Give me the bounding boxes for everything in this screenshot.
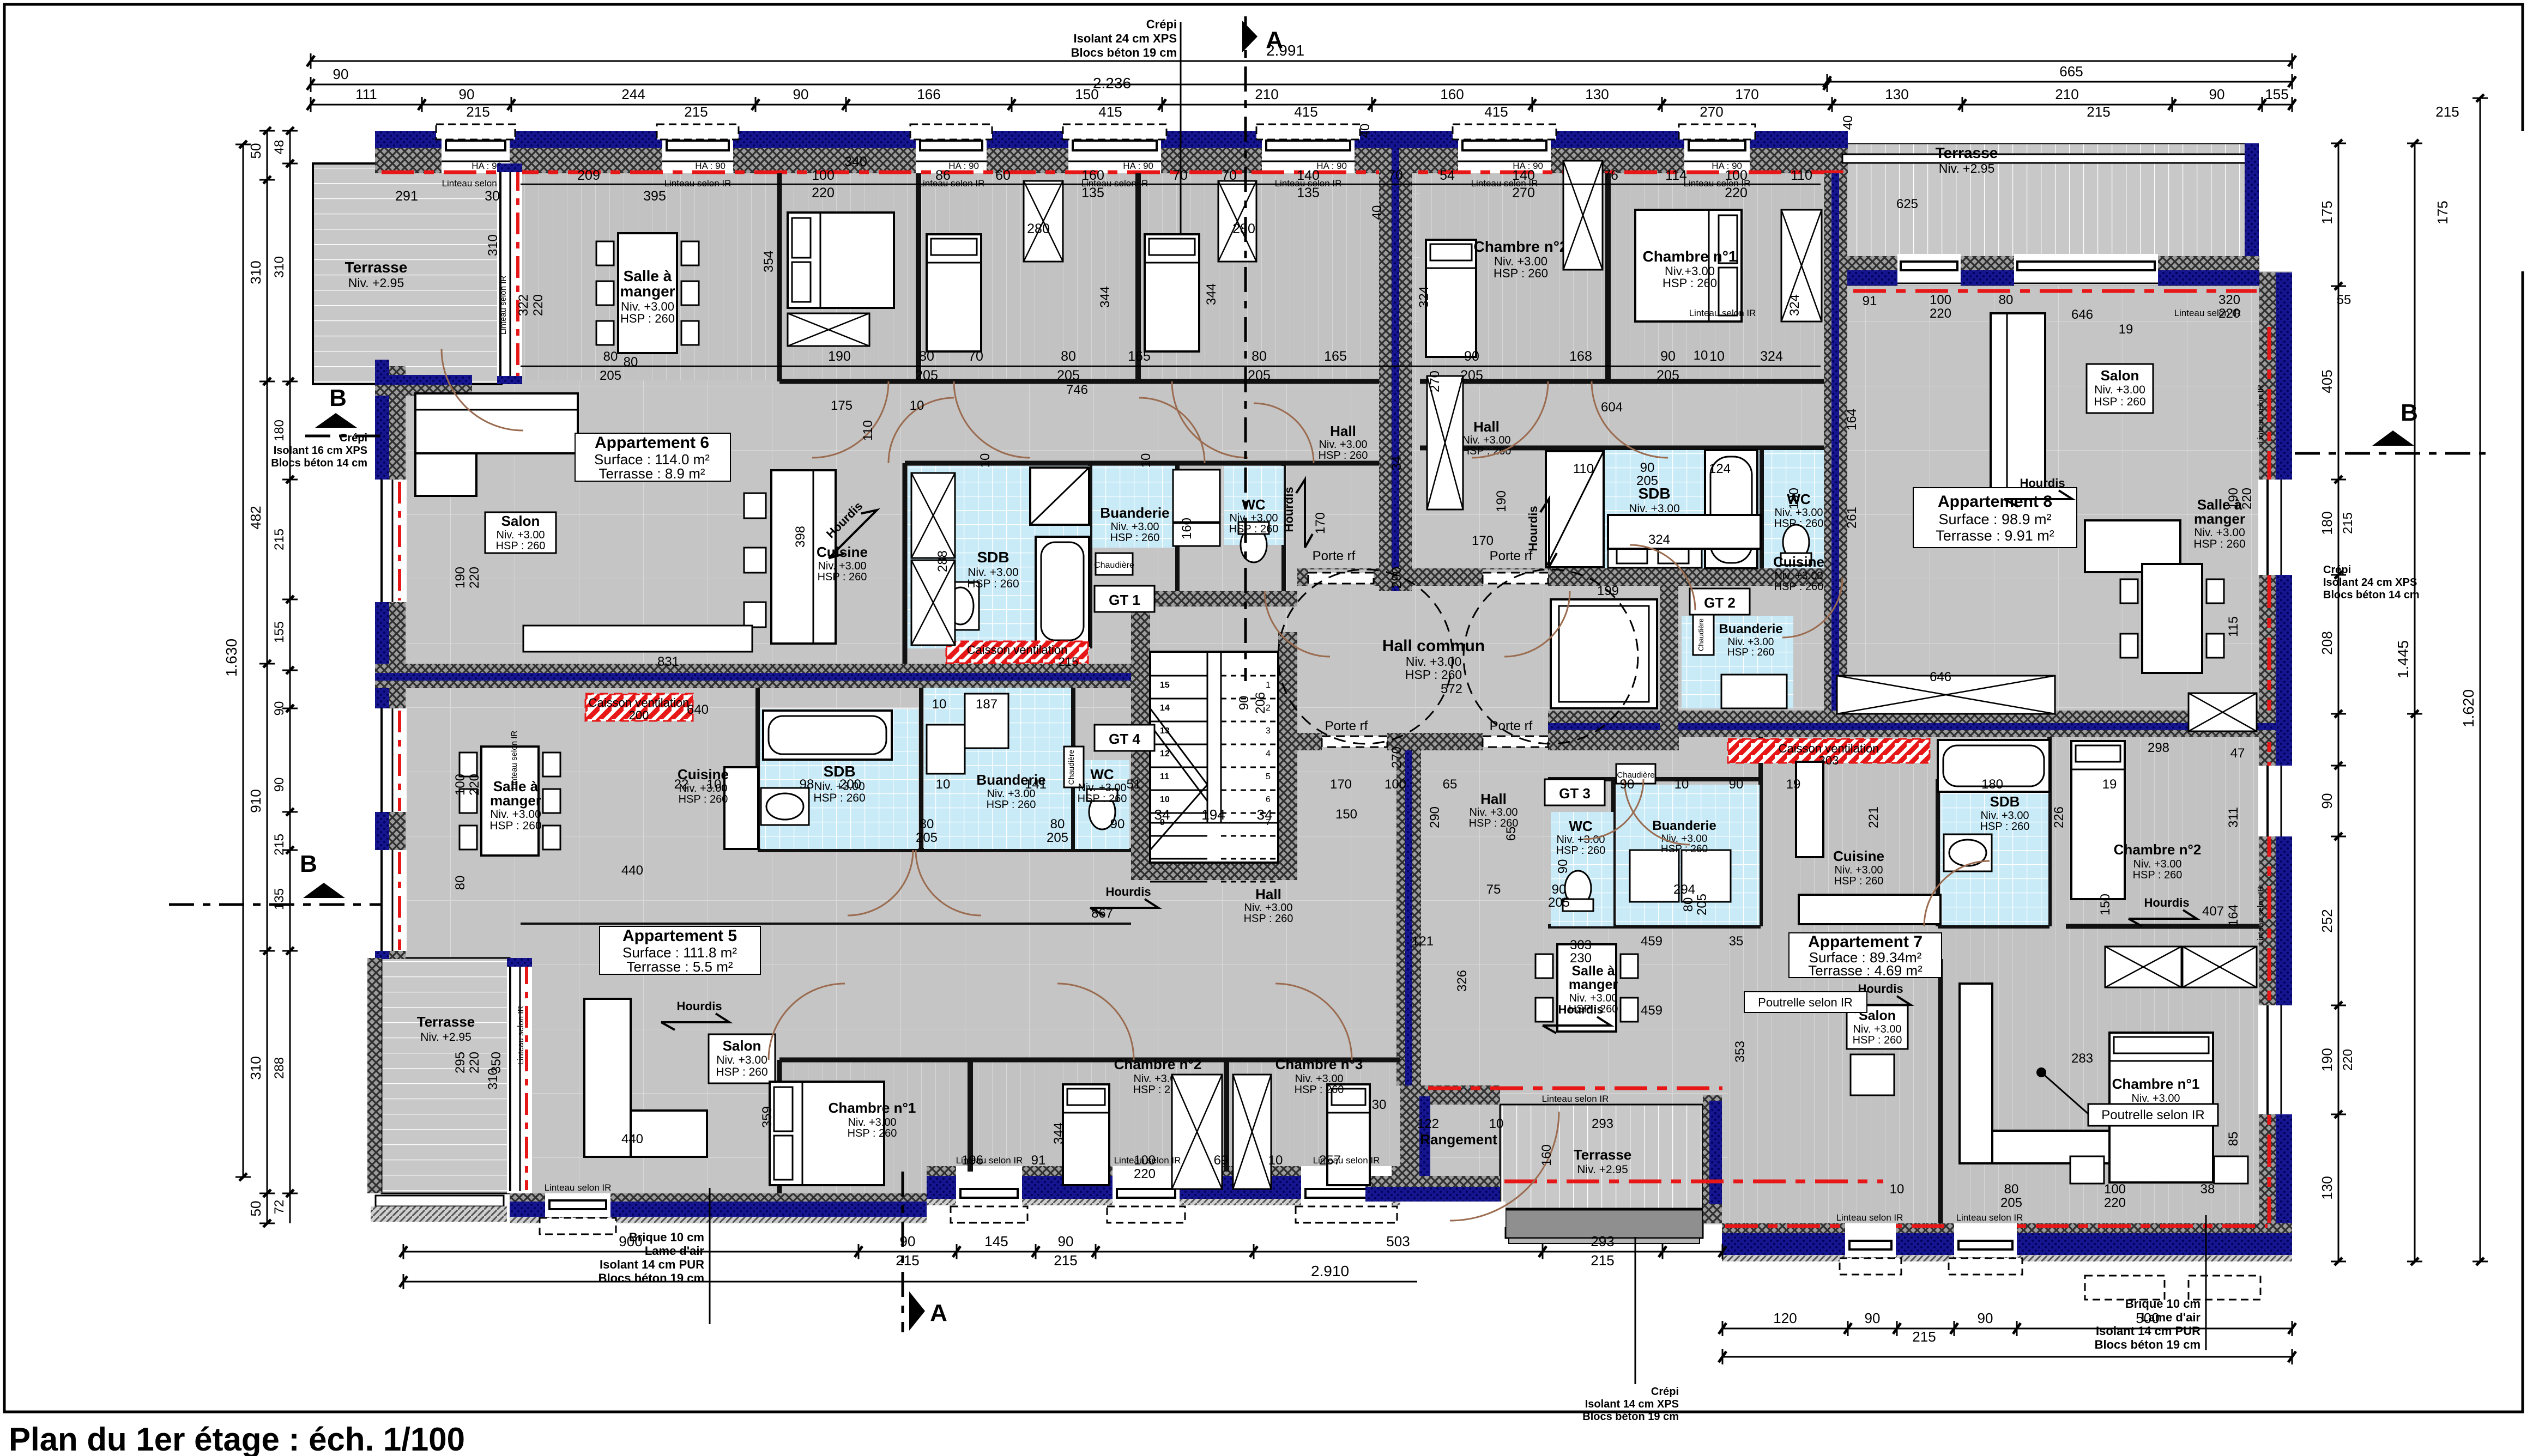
- svg-text:100: 100: [812, 168, 835, 183]
- svg-text:Linteau selon IR: Linteau selon IR: [1689, 308, 1756, 318]
- svg-text:HSP : 260: HSP : 260: [1244, 913, 1293, 925]
- svg-text:Niv. +3.00: Niv. +3.00: [2133, 858, 2181, 870]
- svg-text:86: 86: [935, 168, 951, 183]
- svg-text:226: 226: [2052, 806, 2066, 828]
- svg-text:Terrasse: Terrasse: [345, 259, 408, 276]
- svg-text:110: 110: [1791, 168, 1812, 183]
- svg-text:Chambre n°1: Chambre n°1: [1642, 248, 1737, 265]
- svg-text:HSP : 260: HSP : 260: [1110, 532, 1160, 544]
- svg-text:HSP : 260: HSP : 260: [1980, 821, 2030, 833]
- svg-text:194: 194: [1201, 806, 1225, 823]
- svg-text:Terrasse : 5.5 m²: Terrasse : 5.5 m²: [626, 958, 733, 975]
- svg-text:160: 160: [1081, 168, 1104, 183]
- svg-text:322: 322: [516, 294, 531, 316]
- svg-text:Blocs béton 19 cm: Blocs béton 19 cm: [598, 1271, 704, 1285]
- svg-text:215: 215: [2435, 104, 2459, 120]
- svg-text:220: 220: [812, 185, 835, 201]
- svg-text:310: 310: [247, 1056, 264, 1079]
- svg-text:Caisson ventilation: Caisson ventilation: [967, 643, 1068, 657]
- svg-text:Linteau selon IR: Linteau selon IR: [1956, 1212, 2023, 1223]
- svg-text:Salle à: Salle à: [1571, 963, 1615, 979]
- svg-text:168: 168: [1569, 349, 1592, 364]
- svg-text:120: 120: [1773, 1310, 1797, 1326]
- svg-text:210: 210: [1255, 86, 1278, 102]
- svg-text:270: 270: [1428, 371, 1442, 392]
- svg-text:205: 205: [600, 368, 621, 383]
- svg-text:WC: WC: [1090, 766, 1114, 782]
- svg-text:415: 415: [1294, 104, 1317, 120]
- svg-text:205: 205: [1548, 895, 1570, 910]
- svg-text:manger: manger: [620, 283, 675, 300]
- svg-text:244: 244: [621, 86, 645, 102]
- svg-text:90: 90: [1110, 817, 1125, 832]
- svg-text:205: 205: [1460, 368, 1483, 383]
- svg-text:164: 164: [2226, 905, 2241, 926]
- svg-text:230: 230: [1570, 951, 1592, 966]
- svg-text:85: 85: [2226, 1132, 2241, 1146]
- svg-text:Crépi: Crépi: [1651, 1386, 1679, 1398]
- svg-text:5: 5: [1266, 772, 1271, 781]
- svg-text:215: 215: [1059, 655, 1079, 669]
- svg-text:221: 221: [1866, 806, 1881, 828]
- svg-text:90: 90: [2209, 86, 2225, 102]
- svg-text:Linteau selon IR: Linteau selon IR: [499, 276, 508, 335]
- svg-text:6: 6: [1266, 795, 1271, 804]
- svg-text:205: 205: [1695, 894, 1709, 915]
- svg-text:manger: manger: [490, 792, 541, 809]
- svg-text:Niv. +3.00: Niv. +3.00: [1462, 434, 1510, 446]
- svg-text:10: 10: [910, 398, 924, 413]
- svg-text:900: 900: [619, 1233, 642, 1249]
- svg-text:HSP : 260: HSP : 260: [620, 312, 675, 325]
- svg-text:GT 1: GT 1: [1109, 592, 1140, 608]
- svg-text:190: 190: [2319, 1048, 2335, 1071]
- svg-text:141: 141: [1025, 777, 1047, 792]
- svg-text:Niv. +3.00: Niv. +3.00: [1834, 864, 1883, 876]
- svg-text:50: 50: [247, 143, 264, 159]
- svg-text:910: 910: [247, 789, 264, 812]
- svg-text:160: 160: [1440, 86, 1464, 102]
- svg-text:GT 4: GT 4: [1109, 731, 1140, 747]
- svg-text:Linteau selon IR: Linteau selon IR: [664, 178, 731, 189]
- svg-text:Niv. +3.00: Niv. +3.00: [1110, 521, 1159, 533]
- svg-text:80: 80: [1061, 349, 1076, 364]
- svg-text:Hourdis: Hourdis: [1105, 885, 1151, 899]
- svg-text:HSP : 260: HSP : 260: [1661, 844, 1708, 855]
- svg-text:72: 72: [272, 1200, 287, 1215]
- svg-text:76: 76: [1603, 168, 1618, 183]
- svg-text:150: 150: [1075, 86, 1098, 102]
- svg-text:91: 91: [1031, 1153, 1046, 1168]
- svg-text:HSP : 260: HSP : 260: [1078, 793, 1127, 805]
- svg-text:350: 350: [489, 1052, 504, 1073]
- svg-text:150: 150: [1335, 807, 1357, 822]
- svg-text:90: 90: [1660, 349, 1676, 364]
- svg-text:HSP : 260: HSP : 260: [1834, 875, 1884, 887]
- svg-text:GT 2: GT 2: [1704, 594, 1736, 611]
- svg-text:Salle à: Salle à: [624, 268, 672, 284]
- svg-text:215: 215: [1591, 1252, 1614, 1269]
- svg-text:324: 324: [1417, 286, 1431, 308]
- svg-text:10: 10: [707, 777, 722, 792]
- svg-text:215: 215: [1912, 1328, 1936, 1345]
- svg-text:55: 55: [2337, 293, 2351, 307]
- svg-text:90: 90: [1865, 1310, 1881, 1326]
- svg-text:130: 130: [2319, 1176, 2335, 1199]
- svg-text:40: 40: [1358, 124, 1373, 138]
- svg-text:Linteau selon IR: Linteau selon IR: [510, 731, 519, 790]
- svg-text:170: 170: [1735, 86, 1758, 102]
- svg-text:Appartement 6: Appartement 6: [595, 434, 709, 452]
- svg-text:Terrasse: Terrasse: [1936, 144, 1998, 161]
- svg-text:HSP : 260: HSP : 260: [716, 1066, 767, 1078]
- svg-text:Isolant 16 cm XPS: Isolant 16 cm XPS: [274, 445, 367, 457]
- svg-text:Hourdis: Hourdis: [2020, 476, 2065, 490]
- svg-text:324: 324: [1760, 349, 1783, 364]
- svg-text:4: 4: [1266, 749, 1271, 759]
- svg-text:293: 293: [1591, 1233, 1614, 1249]
- svg-text:Cuisine: Cuisine: [1773, 554, 1824, 570]
- svg-text:340: 340: [844, 154, 867, 169]
- svg-text:Niv. +3.00: Niv. +3.00: [1853, 1023, 1901, 1035]
- svg-text:Hall: Hall: [1480, 791, 1507, 807]
- svg-text:90: 90: [1464, 349, 1479, 364]
- svg-text:205: 205: [1047, 830, 1068, 845]
- svg-text:220: 220: [1134, 1167, 1156, 1181]
- svg-text:HSP : 260: HSP : 260: [1556, 845, 1606, 857]
- svg-text:80: 80: [920, 817, 934, 832]
- svg-text:HSP : 260: HSP : 260: [1229, 523, 1279, 535]
- svg-text:Niv. +3.00: Niv. +3.00: [848, 1117, 896, 1129]
- svg-text:Linteau selon IR: Linteau selon IR: [2174, 308, 2241, 318]
- svg-text:HA : 90: HA : 90: [695, 161, 726, 171]
- svg-text:35: 35: [1729, 934, 1744, 949]
- svg-text:90: 90: [793, 86, 809, 102]
- svg-text:90: 90: [1620, 777, 1635, 792]
- svg-text:175: 175: [2319, 201, 2335, 224]
- svg-text:Linteau selon IR: Linteau selon IR: [2256, 385, 2265, 444]
- svg-text:Hourdis: Hourdis: [1526, 506, 1540, 551]
- svg-text:A: A: [930, 1300, 947, 1326]
- svg-text:10: 10: [1694, 348, 1708, 363]
- svg-text:Blocs béton 19 cm: Blocs béton 19 cm: [1582, 1411, 1679, 1423]
- svg-text:90: 90: [272, 701, 287, 716]
- svg-text:746: 746: [1066, 383, 1088, 397]
- svg-text:122: 122: [1417, 1117, 1439, 1131]
- svg-text:Rangement: Rangement: [1420, 1131, 1497, 1148]
- svg-text:205: 205: [916, 830, 938, 845]
- svg-text:140: 140: [1512, 168, 1535, 183]
- svg-text:70: 70: [968, 349, 983, 364]
- svg-text:170: 170: [1330, 777, 1352, 792]
- svg-text:HSP : 260: HSP : 260: [1774, 581, 1824, 593]
- svg-text:130: 130: [1885, 86, 1908, 102]
- svg-text:80: 80: [603, 349, 618, 364]
- svg-text:665: 665: [2059, 63, 2083, 80]
- svg-text:Appartement 5: Appartement 5: [622, 927, 737, 945]
- svg-text:80: 80: [1999, 293, 2014, 307]
- svg-text:Chambre n°2: Chambre n°2: [1114, 1056, 1202, 1072]
- svg-text:Niv. +3.00: Niv. +3.00: [1728, 636, 1774, 648]
- svg-text:640: 640: [687, 702, 709, 717]
- svg-text:Niv. +3.00: Niv. +3.00: [1661, 833, 1708, 845]
- svg-text:280: 280: [1232, 221, 1255, 236]
- svg-text:2.910: 2.910: [1311, 1263, 1349, 1279]
- svg-text:220: 220: [467, 567, 482, 589]
- svg-text:288: 288: [935, 550, 950, 572]
- svg-text:100: 100: [2104, 1182, 2126, 1197]
- svg-text:90: 90: [1640, 460, 1655, 475]
- svg-text:215: 215: [2087, 104, 2110, 120]
- svg-text:290: 290: [1389, 567, 1404, 589]
- svg-text:220: 220: [1930, 306, 1951, 321]
- svg-text:205: 205: [1248, 368, 1271, 383]
- svg-text:Hourdis: Hourdis: [1282, 487, 1296, 532]
- svg-text:Terrasse : 4.69 m²: Terrasse : 4.69 m²: [1808, 962, 1923, 979]
- svg-text:459: 459: [1641, 934, 1662, 949]
- svg-text:205: 205: [1057, 368, 1080, 383]
- svg-text:51: 51: [1127, 777, 1141, 792]
- svg-text:310: 310: [247, 260, 264, 284]
- svg-text:215: 215: [1054, 1252, 1077, 1269]
- svg-text:180: 180: [1787, 488, 1801, 509]
- svg-text:270: 270: [1512, 185, 1535, 201]
- svg-text:Buanderie: Buanderie: [1100, 505, 1169, 521]
- svg-text:50: 50: [247, 1201, 264, 1217]
- svg-text:Chaudière: Chaudière: [1697, 618, 1705, 651]
- svg-text:215: 215: [272, 834, 287, 856]
- svg-text:625: 625: [1896, 197, 1918, 211]
- svg-text:19: 19: [2119, 322, 2133, 337]
- svg-text:HSP : 260: HSP : 260: [2094, 396, 2145, 408]
- svg-text:205: 205: [1657, 368, 1679, 383]
- svg-text:187: 187: [976, 697, 997, 712]
- svg-text:Surface : 98.9 m²: Surface : 98.9 m²: [1938, 511, 2051, 527]
- svg-text:10: 10: [936, 777, 951, 792]
- svg-text:320: 320: [2218, 293, 2240, 307]
- svg-text:90: 90: [900, 1233, 916, 1249]
- svg-text:Niv. +3.00: Niv. +3.00: [818, 560, 866, 572]
- svg-text:114: 114: [1665, 168, 1687, 183]
- svg-text:Hall: Hall: [1473, 418, 1500, 435]
- svg-text:140: 140: [1297, 168, 1320, 183]
- svg-text:164: 164: [1845, 409, 1859, 430]
- svg-text:manger: manger: [1569, 977, 1618, 992]
- svg-text:80: 80: [453, 876, 468, 890]
- svg-text:206: 206: [1253, 692, 1268, 714]
- svg-text:10: 10: [932, 697, 947, 712]
- svg-text:15: 15: [1160, 681, 1170, 690]
- svg-text:HSP : 260: HSP : 260: [1295, 1084, 1344, 1096]
- svg-text:Salon: Salon: [501, 513, 540, 529]
- svg-text:145: 145: [984, 1233, 1008, 1249]
- svg-text:324: 324: [1648, 532, 1670, 547]
- svg-text:135: 135: [1081, 185, 1104, 201]
- svg-text:HSP : 260: HSP : 260: [679, 793, 728, 805]
- svg-text:Niv. +2.95: Niv. +2.95: [1577, 1163, 1628, 1176]
- svg-text:Niv. +3.00: Niv. +3.00: [968, 566, 1019, 579]
- svg-text:604: 604: [1601, 400, 1623, 415]
- svg-text:165: 165: [1324, 349, 1347, 364]
- svg-text:1: 1: [1266, 681, 1271, 690]
- svg-text:298: 298: [2148, 741, 2169, 755]
- svg-text:Niv. +3.00: Niv. +3.00: [2094, 384, 2145, 396]
- svg-text:Niv. +3.00: Niv. +3.00: [1980, 810, 2029, 822]
- svg-text:Niv. +3.00: Niv. +3.00: [1629, 502, 1680, 515]
- svg-text:155: 155: [272, 621, 287, 643]
- svg-text:80: 80: [2004, 1182, 2019, 1197]
- svg-text:Hall: Hall: [1330, 423, 1356, 439]
- svg-text:124: 124: [1709, 462, 1731, 476]
- svg-text:Poutrelle selon IR: Poutrelle selon IR: [1758, 996, 1853, 1009]
- svg-text:Hourdis: Hourdis: [2144, 896, 2189, 909]
- svg-text:80: 80: [624, 355, 638, 369]
- svg-text:Niv. +3.00: Niv. +3.00: [716, 1054, 767, 1066]
- svg-text:293: 293: [1592, 1117, 1613, 1131]
- svg-text:415: 415: [1484, 104, 1508, 120]
- svg-text:Isolant 14 cm XPS: Isolant 14 cm XPS: [1585, 1398, 1679, 1410]
- svg-text:22: 22: [674, 777, 689, 792]
- svg-text:Linteau selon IR: Linteau selon IR: [516, 1006, 525, 1065]
- svg-text:110: 110: [861, 420, 875, 441]
- svg-text:175: 175: [831, 398, 853, 413]
- svg-text:208: 208: [2319, 631, 2335, 654]
- svg-text:38: 38: [2200, 1182, 2215, 1197]
- svg-text:261: 261: [1845, 507, 1859, 529]
- svg-text:Niv. +2.95: Niv. +2.95: [420, 1031, 471, 1044]
- svg-text:47: 47: [2230, 746, 2245, 761]
- svg-text:130: 130: [1585, 86, 1609, 102]
- svg-text:10: 10: [1139, 453, 1153, 468]
- svg-text:215: 215: [272, 529, 287, 550]
- svg-text:80: 80: [1681, 897, 1696, 912]
- svg-text:Cuisine: Cuisine: [1833, 848, 1884, 864]
- svg-text:Terrasse : 8.9 m²: Terrasse : 8.9 m²: [598, 465, 705, 482]
- svg-text:405: 405: [2319, 369, 2335, 393]
- svg-text:215: 215: [466, 104, 489, 120]
- svg-text:Terrasse : 9.91 m²: Terrasse : 9.91 m²: [1936, 527, 2054, 544]
- svg-text:326: 326: [1455, 970, 1470, 992]
- svg-text:10: 10: [1890, 1182, 1905, 1197]
- svg-text:GT 3: GT 3: [1559, 785, 1591, 802]
- svg-text:294: 294: [1673, 882, 1695, 897]
- svg-text:30: 30: [485, 189, 500, 204]
- svg-text:Isolant 14 cm PUR: Isolant 14 cm PUR: [600, 1258, 704, 1271]
- svg-text:HSP : 260: HSP : 260: [1774, 518, 1824, 530]
- svg-text:Hourdis: Hourdis: [676, 999, 722, 1013]
- svg-text:Linteau selon IR: Linteau selon IR: [545, 1182, 612, 1193]
- svg-text:HSP : 260: HSP : 260: [1405, 668, 1462, 682]
- svg-text:80: 80: [919, 349, 934, 364]
- svg-text:170: 170: [1313, 512, 1328, 534]
- svg-text:100: 100: [1725, 168, 1748, 183]
- svg-text:Isolant 24 cm XPS: Isolant 24 cm XPS: [2323, 577, 2417, 589]
- svg-text:Hourdis: Hourdis: [1558, 1003, 1603, 1016]
- svg-text:Chambre n°1: Chambre n°1: [2112, 1076, 2200, 1092]
- svg-text:170: 170: [1472, 533, 1494, 548]
- svg-text:60: 60: [995, 168, 1011, 183]
- svg-text:70: 70: [1222, 168, 1237, 183]
- svg-text:10: 10: [1160, 795, 1170, 804]
- svg-text:SDB: SDB: [1990, 793, 2020, 810]
- svg-text:398: 398: [793, 526, 808, 548]
- svg-text:80: 80: [1050, 817, 1065, 832]
- svg-text:Linteau selon IR: Linteau selon IR: [1114, 1155, 1181, 1166]
- svg-text:354: 354: [761, 251, 776, 272]
- svg-text:Crépi: Crépi: [340, 432, 367, 444]
- svg-text:572: 572: [1441, 682, 1462, 696]
- svg-text:344: 344: [1098, 286, 1113, 308]
- svg-text:180: 180: [2319, 511, 2335, 535]
- svg-text:Niv. +3.00: Niv. +3.00: [1295, 1073, 1343, 1085]
- svg-text:220: 220: [2240, 488, 2254, 509]
- svg-text:353: 353: [1733, 1041, 1748, 1063]
- svg-text:90: 90: [459, 86, 475, 102]
- svg-text:HSP : 260: HSP : 260: [496, 540, 546, 552]
- svg-text:Porte rf: Porte rf: [1313, 549, 1356, 563]
- svg-text:90: 90: [1237, 696, 1252, 711]
- svg-text:Poutrelle selon IR: Poutrelle selon IR: [2101, 1108, 2204, 1123]
- svg-text:90: 90: [333, 66, 349, 82]
- svg-text:280: 280: [1027, 221, 1050, 236]
- svg-text:Blocs béton 19 cm: Blocs béton 19 cm: [1071, 46, 1177, 59]
- svg-text:Niv. +3.00: Niv. +3.00: [1556, 834, 1605, 846]
- svg-text:Chambre n°2: Chambre n°2: [2114, 841, 2202, 858]
- svg-text:Niv. +3.00: Niv. +3.00: [496, 529, 545, 541]
- svg-text:Niv. +3.00: Niv. +3.00: [2194, 526, 2245, 539]
- svg-text:75: 75: [1486, 882, 1501, 897]
- svg-text:HA : 90: HA : 90: [948, 161, 979, 171]
- svg-text:220: 220: [531, 294, 546, 316]
- svg-text:291: 291: [395, 189, 418, 204]
- svg-text:344: 344: [1051, 1123, 1066, 1144]
- svg-text:98: 98: [800, 777, 814, 792]
- svg-text:Terrasse: Terrasse: [417, 1014, 475, 1030]
- svg-text:HSP : 260: HSP : 260: [1662, 276, 1717, 290]
- svg-text:90: 90: [1556, 859, 1570, 874]
- svg-text:295: 295: [453, 1052, 468, 1073]
- svg-text:70: 70: [1388, 168, 1403, 183]
- svg-text:Salon: Salon: [2101, 367, 2139, 384]
- svg-text:90: 90: [1552, 882, 1567, 897]
- svg-text:10: 10: [1268, 1153, 1283, 1168]
- svg-text:220: 220: [2104, 1196, 2126, 1210]
- svg-text:190: 190: [453, 567, 468, 589]
- svg-text:Linteau selon IR: Linteau selon IR: [956, 1155, 1023, 1166]
- svg-text:B: B: [300, 851, 317, 877]
- svg-text:1.620: 1.620: [2460, 689, 2477, 727]
- svg-text:100: 100: [453, 774, 468, 796]
- svg-text:210: 210: [2055, 86, 2078, 102]
- svg-text:90: 90: [1729, 777, 1744, 792]
- svg-text:500: 500: [2136, 1310, 2159, 1326]
- svg-text:110: 110: [1573, 462, 1594, 476]
- svg-text:HSP : 260: HSP : 260: [1727, 647, 1774, 658]
- svg-text:Buanderie: Buanderie: [1719, 622, 1782, 636]
- svg-text:220: 220: [1725, 185, 1748, 201]
- svg-text:155: 155: [2265, 86, 2288, 102]
- svg-text:290: 290: [1428, 806, 1442, 828]
- svg-text:HSP : 260: HSP : 260: [1494, 266, 1548, 280]
- svg-text:Niv. +3.00: Niv. +3.00: [1244, 902, 1292, 914]
- svg-text:Porte rf: Porte rf: [1490, 719, 1533, 733]
- svg-text:200: 200: [629, 708, 649, 722]
- svg-text:407: 407: [2202, 904, 2224, 919]
- svg-text:30: 30: [1372, 1097, 1387, 1112]
- svg-text:310: 310: [272, 256, 287, 278]
- svg-text:220: 220: [467, 774, 482, 796]
- svg-text:Caisson ventilation: Caisson ventilation: [589, 696, 690, 709]
